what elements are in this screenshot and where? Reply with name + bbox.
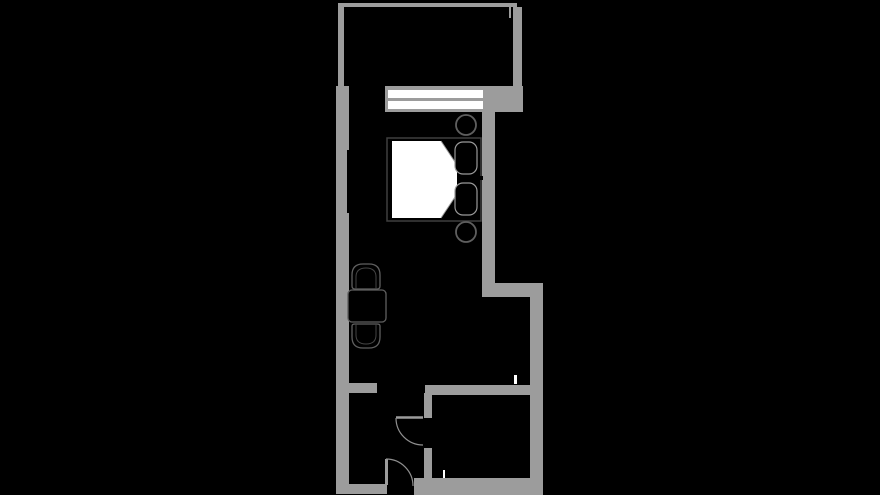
nightstand-top xyxy=(456,115,476,135)
marker-tick-lower xyxy=(443,470,445,478)
wall-balcony-right-return xyxy=(509,7,511,18)
floorplan-drawing xyxy=(0,0,880,495)
wall-hall-stub xyxy=(349,383,377,393)
bed-pillow-top xyxy=(455,142,477,174)
wall-bathroom-left-upper xyxy=(424,393,432,418)
wall-left-main xyxy=(336,86,349,494)
floorplan-stage xyxy=(0,0,880,495)
window-glazing-outer xyxy=(388,90,483,98)
wall-bathroom-left-lower xyxy=(424,448,432,478)
bed-mattress xyxy=(392,141,457,218)
wall-bathroom-top xyxy=(425,385,533,395)
window-glazing-inner xyxy=(388,101,483,109)
wall-left-upper xyxy=(338,7,344,86)
wall-bottom-right xyxy=(414,478,543,495)
room-bathroom xyxy=(432,395,530,478)
wardrobe-recess xyxy=(347,150,350,213)
bed-headboard-notch xyxy=(479,176,483,180)
marker-tick-upper xyxy=(514,375,517,384)
wall-bottom-left xyxy=(336,484,387,494)
wall-balcony-top-rail xyxy=(338,3,517,7)
wall-balcony-right xyxy=(513,7,522,112)
bed-pillow-bottom xyxy=(455,183,477,215)
room-balcony xyxy=(344,7,513,86)
dining-table xyxy=(348,290,386,322)
wall-main-right xyxy=(482,110,495,297)
nightstand-bottom xyxy=(456,222,476,242)
